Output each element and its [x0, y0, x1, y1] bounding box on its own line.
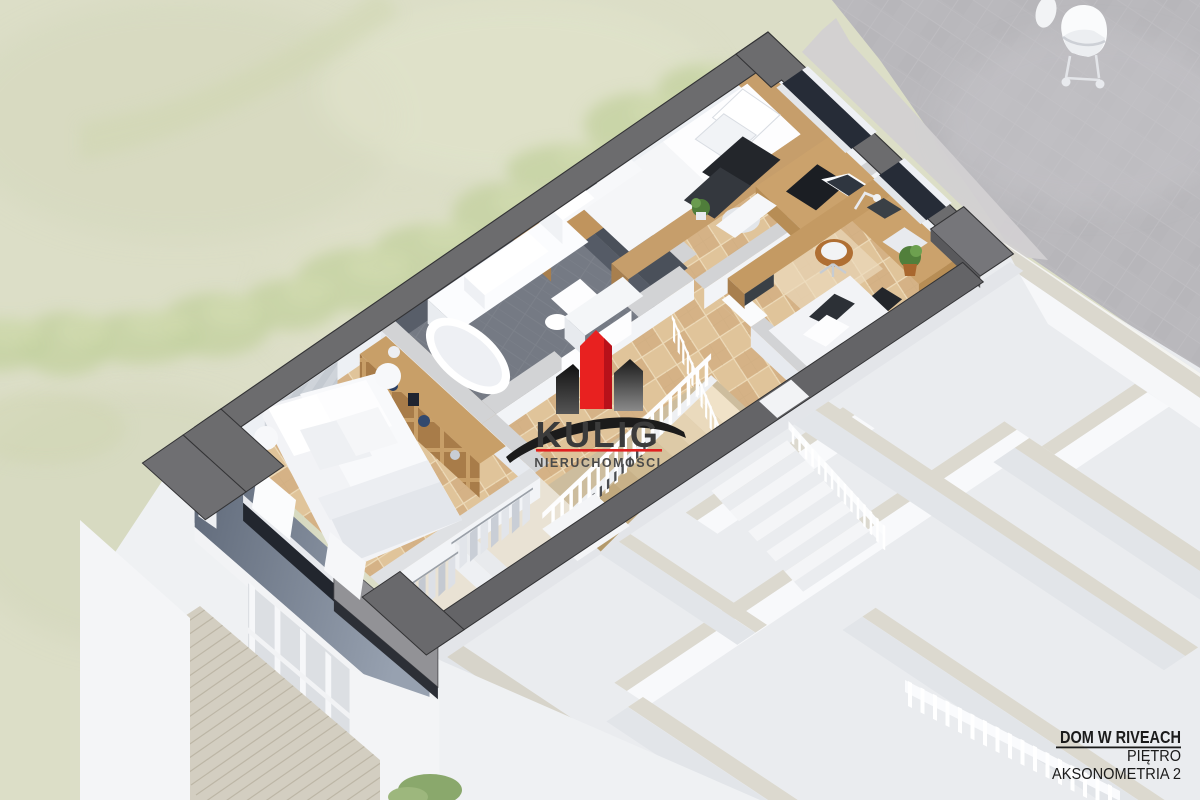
svg-text:AKSONOMETRIA 2: AKSONOMETRIA 2	[1052, 766, 1181, 783]
svg-text:PIĘTRO: PIĘTRO	[1127, 748, 1181, 765]
svg-text:DOM W RIVEACH: DOM W RIVEACH	[1060, 727, 1181, 747]
svg-text:KULIG: KULIG	[536, 414, 661, 455]
svg-text:NIERUCHOMOŚCI: NIERUCHOMOŚCI	[534, 455, 661, 470]
